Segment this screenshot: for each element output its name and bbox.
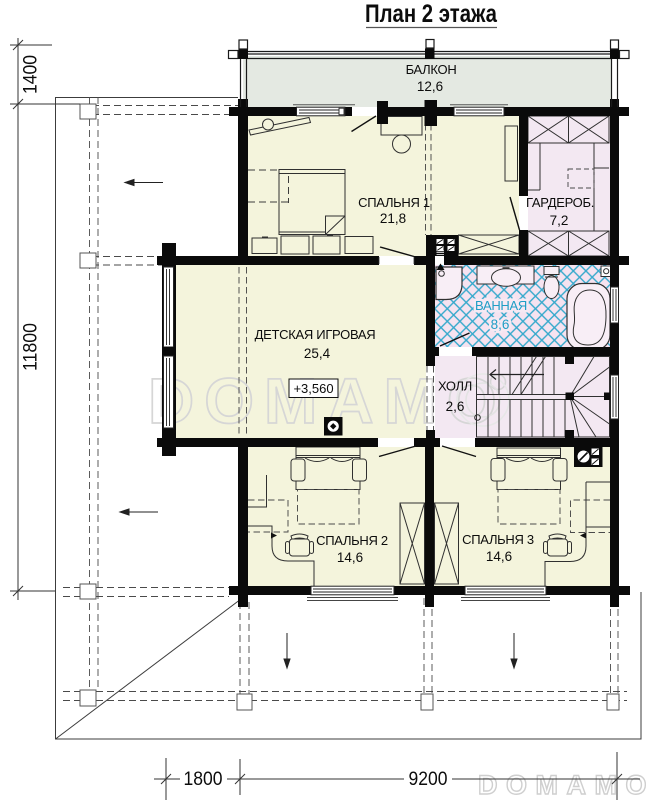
svg-text:+3,560: +3,560 <box>293 381 333 396</box>
svg-text:ГАРДЕРОБ.: ГАРДЕРОБ. <box>526 195 594 210</box>
svg-text:СПАЛЬНЯ 2: СПАЛЬНЯ 2 <box>316 533 388 548</box>
svg-text:8,6: 8,6 <box>491 317 510 332</box>
svg-text:1400: 1400 <box>21 55 42 94</box>
svg-text:БАЛКОН: БАЛКОН <box>406 62 457 77</box>
svg-text:ХОЛЛ: ХОЛЛ <box>438 379 472 394</box>
svg-text:СПАЛЬНЯ 1: СПАЛЬНЯ 1 <box>358 195 430 210</box>
svg-text:План 2 этажа: План 2 этажа <box>365 0 498 28</box>
svg-text:21,8: 21,8 <box>380 211 406 226</box>
svg-text:7,2: 7,2 <box>550 213 569 228</box>
svg-text:25,4: 25,4 <box>304 346 331 361</box>
svg-text:12,6: 12,6 <box>417 79 443 94</box>
svg-text:9200: 9200 <box>409 769 448 790</box>
svg-text:1800: 1800 <box>184 769 223 790</box>
svg-text:2,6: 2,6 <box>446 399 465 414</box>
svg-text:14,6: 14,6 <box>486 549 512 564</box>
svg-text:11800: 11800 <box>21 323 42 371</box>
svg-text:СПАЛЬНЯ 3: СПАЛЬНЯ 3 <box>462 532 534 547</box>
svg-text:ВАННАЯ: ВАННАЯ <box>475 298 527 313</box>
svg-text:ДЕТСКАЯ ИГРОВАЯ: ДЕТСКАЯ ИГРОВАЯ <box>255 327 376 342</box>
svg-text:14,6: 14,6 <box>337 550 363 565</box>
